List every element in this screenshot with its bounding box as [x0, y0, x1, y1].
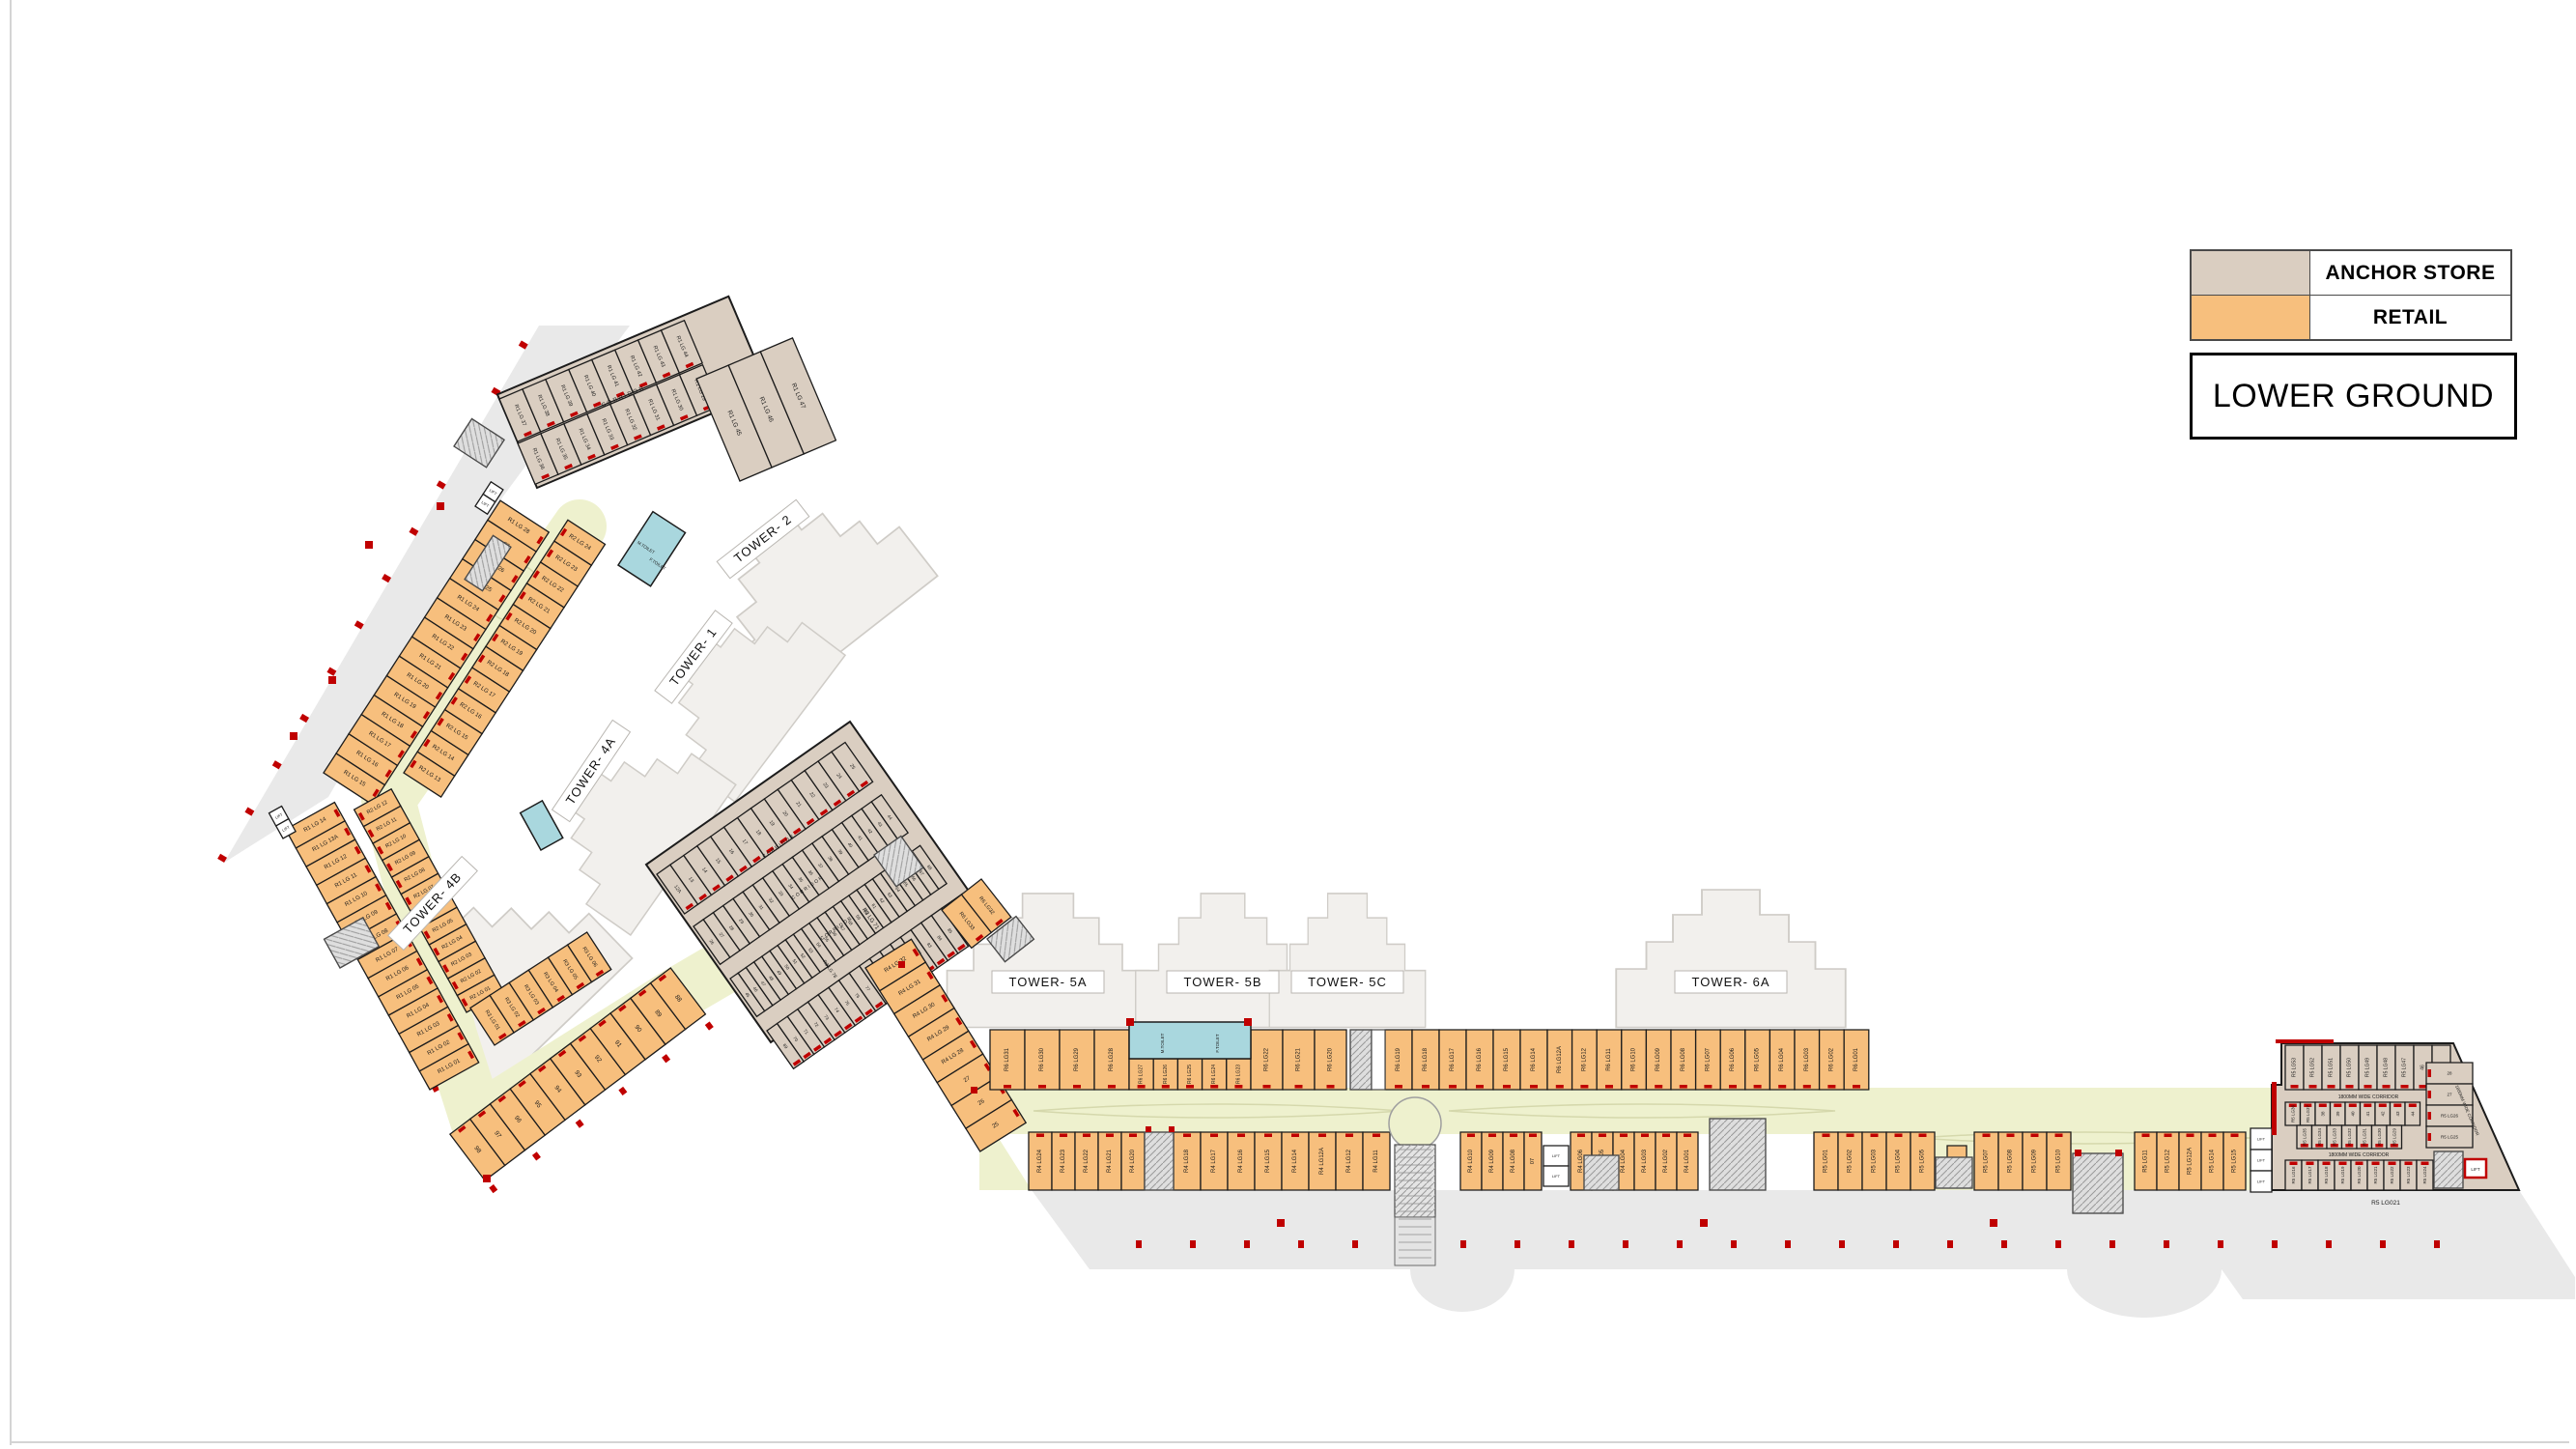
unit-label: R5 LG20 [2357, 1166, 2362, 1184]
unit-label: R4 LG04 [1621, 1149, 1627, 1173]
tower-6a-label: TOWER- 6A [1675, 971, 1787, 993]
unit-label: 42 [2380, 1111, 2385, 1117]
unit-label: R6 LG18 [1423, 1047, 1429, 1071]
tower-5c-label: TOWER- 5C [1291, 971, 1403, 993]
unit-label: R6 LG15 [1504, 1047, 1510, 1071]
unit-label: R4 LG17 [1211, 1149, 1217, 1173]
unit-label: R5 LG53 [2292, 1058, 2298, 1077]
door-mark [1529, 1134, 1537, 1138]
unit-label: R5 LG35 [2302, 1127, 2307, 1146]
unit-label: R6 LG07 [1705, 1047, 1711, 1071]
floor-plan-drawing: R1 LG 15R1 LG 16R1 LG 17R1 LG 18R1 LG 19… [0, 0, 2576, 1449]
unit-label: R5 LG22 [2390, 1166, 2394, 1184]
unit-label: 07 [1530, 1158, 1536, 1164]
tower-5b-label-text: TOWER- 5B [1184, 975, 1262, 989]
unit-label: R6 LG08 [1681, 1047, 1686, 1071]
door-mark [1291, 1134, 1299, 1138]
door-mark [2165, 1134, 2172, 1138]
door-mark [1778, 1085, 1786, 1089]
unit-label: R4 LG11 [1373, 1150, 1379, 1173]
unit-label: R5 LG33 [2332, 1127, 2336, 1146]
tower-6a-label-text: TOWER- 6A [1692, 975, 1770, 989]
unit-label: R5 LG30 [2377, 1127, 2382, 1146]
unit-label: 44 [2410, 1111, 2415, 1117]
door-mark [2007, 1134, 2015, 1138]
door-mark [1183, 1134, 1191, 1138]
door-mark [1264, 1134, 1272, 1138]
door-mark [1327, 1085, 1335, 1089]
unit-label: R5 LG11 [2143, 1150, 2149, 1173]
door-mark [1847, 1134, 1854, 1138]
unit-label: LIFT [1552, 1174, 1561, 1179]
door-mark [1827, 1085, 1835, 1089]
tower-5a-label: TOWER- 5A [992, 971, 1104, 993]
unit-label: R5 LG04 [1896, 1149, 1902, 1173]
unit-label: R6 LG03 [1804, 1047, 1810, 1071]
door-mark [2420, 1085, 2427, 1089]
door-mark [2393, 1104, 2401, 1108]
unit-label: R6 LG26 [1163, 1065, 1169, 1084]
unit-label: R6 LG24 [1211, 1065, 1217, 1084]
parking-right-band [1032, 1190, 2575, 1318]
door-mark [2421, 1162, 2429, 1166]
far-anchor-caption: R5 LG021 [2371, 1200, 2400, 1207]
door-mark [2187, 1134, 2194, 1138]
unit-label: R5 LG18 [2324, 1166, 2329, 1184]
door-mark [1853, 1085, 1860, 1089]
door-mark [1871, 1134, 1879, 1138]
door-mark [1210, 1134, 1218, 1138]
door-mark [1620, 1134, 1628, 1138]
legend: ANCHOR STORE RETAIL [2190, 249, 2512, 341]
door-mark [2409, 1104, 2417, 1108]
unit-label: R4 LG01 [1684, 1149, 1690, 1173]
unit-label: R5 LG10 [2056, 1149, 2062, 1173]
unit-label: R5 LG36 [2290, 1104, 2295, 1122]
door-mark [1083, 1134, 1090, 1138]
door-mark [2364, 1104, 2371, 1108]
door-mark [2405, 1162, 2413, 1166]
unit-label: R5 LG02 [1848, 1149, 1854, 1173]
unit-label: R6 LG20 [1328, 1047, 1334, 1071]
door-mark [1210, 1085, 1218, 1089]
unit-label: R6 LG05 [1755, 1047, 1761, 1071]
unit-label: R6 LG10 [1631, 1047, 1637, 1071]
door-mark [1503, 1085, 1511, 1089]
unit-label: R5 LG47 [2402, 1058, 2408, 1077]
unit-label: R6 LG29 [1074, 1047, 1080, 1071]
door-mark [1476, 1085, 1484, 1089]
door-mark [2328, 1085, 2335, 1089]
unit-label: R6 LG02 [1828, 1047, 1834, 1071]
unit-label: R6 LG16 [1477, 1047, 1483, 1071]
unit-label: R6 LG04 [1779, 1047, 1785, 1071]
door-mark [2339, 1162, 2347, 1166]
unit-label: R5 LG51 [2329, 1058, 2335, 1077]
wide-corridor-caption-2: 1800MM WIDE CORRIDOR [2329, 1152, 2390, 1158]
unit-label: R5 LG37 [2306, 1104, 2310, 1122]
f-toilet-label-right: F.TOILET [1215, 1034, 1220, 1052]
tower-5c-footprint [1269, 894, 1426, 1028]
door-mark [1422, 1085, 1430, 1089]
door-mark [2349, 1104, 2357, 1108]
door-mark [1186, 1085, 1194, 1089]
toilet-block-right [1129, 1022, 1251, 1059]
door-mark [1345, 1134, 1353, 1138]
anchor-store-swatch [2192, 251, 2310, 295]
unit-label: R4 LG09 [1489, 1149, 1495, 1173]
unit-label: R6 LG30 [1039, 1047, 1045, 1071]
door-mark [1823, 1134, 1830, 1138]
unit-label: R6 LG11 [1606, 1048, 1612, 1071]
floor-plan-page: R1 LG 15R1 LG 16R1 LG 17R1 LG 18R1 LG 19… [0, 0, 2576, 1449]
unit-label: R6 LG27 [1139, 1065, 1145, 1084]
unit-label: R5 LG29 [2392, 1127, 2396, 1146]
retail-swatch [2192, 296, 2310, 339]
retail-label: RETAIL [2310, 296, 2510, 339]
door-mark [1684, 1134, 1691, 1138]
door-mark [1004, 1085, 1011, 1089]
unit-label: R4 LG22 [1084, 1149, 1090, 1173]
unit-label: R4 LG15 [1265, 1149, 1271, 1173]
unit-label: R6 LG28 [1109, 1047, 1115, 1071]
door-mark [1704, 1085, 1712, 1089]
door-mark [1138, 1085, 1146, 1089]
door-mark [1983, 1134, 1991, 1138]
unit-label: R6 LG19 [1396, 1047, 1401, 1071]
tower-footprints [379, 461, 1846, 1105]
unit-label: R6 LG09 [1656, 1047, 1661, 1071]
anchor-store-label: ANCHOR STORE [2310, 251, 2510, 295]
unit-label: R6 LG22 [1264, 1047, 1270, 1071]
unit-label: R5 LG05 [1920, 1149, 1926, 1173]
unit-label: R4 LG14 [1292, 1149, 1298, 1173]
tower-5c-label-text: TOWER- 5C [1308, 975, 1387, 989]
unit-label: 43 [2395, 1111, 2400, 1117]
door-mark [1373, 1134, 1380, 1138]
door-mark [1036, 1134, 1044, 1138]
door-mark [1318, 1134, 1326, 1138]
door-mark [1680, 1085, 1687, 1089]
unit-label: LIFT [2257, 1179, 2266, 1184]
door-mark [2428, 1112, 2432, 1120]
door-mark [2231, 1134, 2239, 1138]
door-mark [2319, 1104, 2327, 1108]
unit-label: R5 LG31 [2362, 1127, 2366, 1146]
unit-label: R4 LG20 [1130, 1149, 1136, 1173]
unit-label: R6 LG01 [1854, 1047, 1859, 1071]
unit-label: R6 LG21 [1296, 1047, 1302, 1071]
unit-label: 46 [2420, 1065, 2426, 1070]
door-mark [2290, 1162, 2298, 1166]
unit-label: R5 LG08 [2008, 1149, 2014, 1173]
door-mark [1556, 1085, 1564, 1089]
unit-label: R6 LG17 [1450, 1047, 1456, 1071]
door-mark [1577, 1134, 1585, 1138]
door-mark [1510, 1134, 1517, 1138]
door-mark [1655, 1085, 1662, 1089]
unit-label: R5 LG01 [1824, 1149, 1829, 1173]
door-mark [1234, 1085, 1242, 1089]
unit-label: R5 LG17 [2307, 1166, 2312, 1184]
door-mark [1599, 1134, 1606, 1138]
door-mark [1488, 1134, 1496, 1138]
unit-label: LIFT [2257, 1158, 2266, 1163]
unit-label: R5 LG32 [2347, 1127, 2352, 1146]
door-mark [1630, 1085, 1638, 1089]
door-mark [1237, 1134, 1245, 1138]
unit-label: R4 LG23 [1061, 1149, 1066, 1173]
door-mark [1106, 1134, 1114, 1138]
unit-label: R6 LG14 [1531, 1047, 1537, 1071]
door-mark [2356, 1162, 2364, 1166]
door-mark [1729, 1085, 1737, 1089]
door-mark [1108, 1085, 1116, 1089]
door-mark [2055, 1134, 2063, 1138]
wide-corridor-caption-1: 1800MM WIDE CORRIDOR [2338, 1094, 2399, 1100]
unit-label: R5 LG12 [2166, 1149, 2171, 1173]
door-mark [1467, 1134, 1475, 1138]
m-toilet-label-right: M.TOILET [1160, 1033, 1165, 1053]
unit-label: R4 LG03 [1642, 1149, 1648, 1173]
door-mark [1073, 1085, 1081, 1089]
tower-5b-label: TOWER- 5B [1167, 971, 1279, 993]
door-mark [1580, 1085, 1588, 1089]
door-mark [1449, 1085, 1457, 1089]
unit-label: 28 [2447, 1071, 2452, 1076]
unit-label: R5 LG48 [2384, 1058, 2390, 1077]
door-mark [2309, 1085, 2317, 1089]
door-mark [2334, 1104, 2341, 1108]
unit-label: R5 LG49 [2365, 1058, 2371, 1077]
door-mark [2031, 1134, 2039, 1138]
unit-label: 38 [2320, 1111, 2325, 1117]
unit-label: LIFT [1552, 1153, 1561, 1158]
unit-label: R4 LG12 [1346, 1149, 1352, 1173]
door-mark [2383, 1085, 2391, 1089]
unit-label: R4 LG24 [1037, 1149, 1043, 1173]
door-mark [1662, 1134, 1670, 1138]
unit-label: 27 [2447, 1093, 2452, 1097]
unit-label: R5 LG15 [2232, 1149, 2238, 1173]
unit-label: R5 LG19 [2340, 1166, 2345, 1184]
unit-label: 39 [2335, 1111, 2340, 1117]
door-mark [1895, 1134, 1903, 1138]
unit-label: R4 LG12A [1319, 1148, 1325, 1175]
unit-label: R4 LG02 [1663, 1149, 1669, 1173]
door-mark [1162, 1085, 1170, 1089]
unit-label: R4 LG06 [1578, 1149, 1584, 1173]
door-mark [1641, 1134, 1649, 1138]
unit-label: R4 LG18 [1184, 1149, 1190, 1173]
far-lift-label: LIFT [2471, 1167, 2480, 1172]
door-mark [2389, 1162, 2396, 1166]
door-mark [1803, 1085, 1811, 1089]
unit-label: R6 LG25 [1187, 1065, 1193, 1084]
legend-row-anchor: ANCHOR STORE [2192, 251, 2510, 295]
unit-label: R5 LG03 [1872, 1149, 1878, 1173]
unit-label: R5 LG09 [2032, 1149, 2038, 1173]
unit-label: R5 LG16 [2291, 1166, 2296, 1184]
unit-label: R5 LG23 [2406, 1166, 2411, 1184]
unit-label: LIFT [2257, 1137, 2266, 1142]
door-mark [2428, 1133, 2432, 1141]
door-mark [2323, 1162, 2331, 1166]
door-mark [2142, 1134, 2150, 1138]
tower-6a-footprint [1616, 890, 1846, 1028]
unit-label: R6 LG12A [1557, 1046, 1563, 1073]
unit-label: 40 [2350, 1111, 2355, 1117]
door-mark [1605, 1085, 1613, 1089]
unit-label: R6 LG06 [1730, 1047, 1736, 1071]
unit-label: R5 LG25 [2441, 1135, 2459, 1140]
door-mark [2364, 1085, 2372, 1089]
door-mark [1530, 1085, 1538, 1089]
unit-label: R4 LG21 [1107, 1149, 1113, 1173]
unit-label: R4 LG10 [1468, 1149, 1474, 1173]
door-mark [2307, 1162, 2314, 1166]
door-mark [2379, 1104, 2387, 1108]
floor-title: LOWER GROUND [2190, 353, 2517, 440]
unit-label: R5 LG52 [2310, 1058, 2316, 1077]
door-mark [2346, 1085, 2354, 1089]
unit-label: R5 LG21 [2373, 1166, 2378, 1184]
door-mark [1129, 1134, 1137, 1138]
door-mark [1038, 1085, 1046, 1089]
door-mark [2428, 1069, 2432, 1077]
door-mark [2372, 1162, 2380, 1166]
atrium-grand-stair [1389, 1097, 1441, 1265]
unit-label: 41 [2365, 1111, 2370, 1117]
door-mark [1919, 1134, 1927, 1138]
door-mark [2291, 1085, 2299, 1089]
door-mark [1060, 1134, 1067, 1138]
door-mark [1263, 1085, 1271, 1089]
door-mark [1295, 1085, 1303, 1089]
unit-label: R5 LG07 [1984, 1149, 1990, 1173]
door-mark [2428, 1091, 2432, 1098]
unit-label: R5 LG50 [2347, 1058, 2353, 1077]
unit-label: R4 LG08 [1511, 1149, 1516, 1173]
tower-5a-label-text: TOWER- 5A [1009, 975, 1088, 989]
door-mark [1754, 1085, 1762, 1089]
door-mark [2209, 1134, 2217, 1138]
unit-label: R6 LG31 [1005, 1047, 1010, 1071]
unit-label: R6 LG12 [1581, 1047, 1587, 1071]
unit-label: R6 LG23 [1235, 1065, 1241, 1084]
door-mark [1395, 1085, 1402, 1089]
legend-row-retail: RETAIL [2192, 295, 2510, 339]
unit-label: R5 LG26 [2441, 1114, 2459, 1119]
door-mark [2401, 1085, 2409, 1089]
unit-label: R5 LG12A [2188, 1148, 2194, 1175]
unit-label: R5 LG24 [2422, 1166, 2427, 1184]
unit-label: R4 LG16 [1238, 1149, 1244, 1173]
unit-label: R5 LG14 [2210, 1149, 2216, 1173]
unit-label: R5 LG34 [2317, 1127, 2322, 1146]
parking-tick-row-right [1111, 1240, 2463, 1248]
